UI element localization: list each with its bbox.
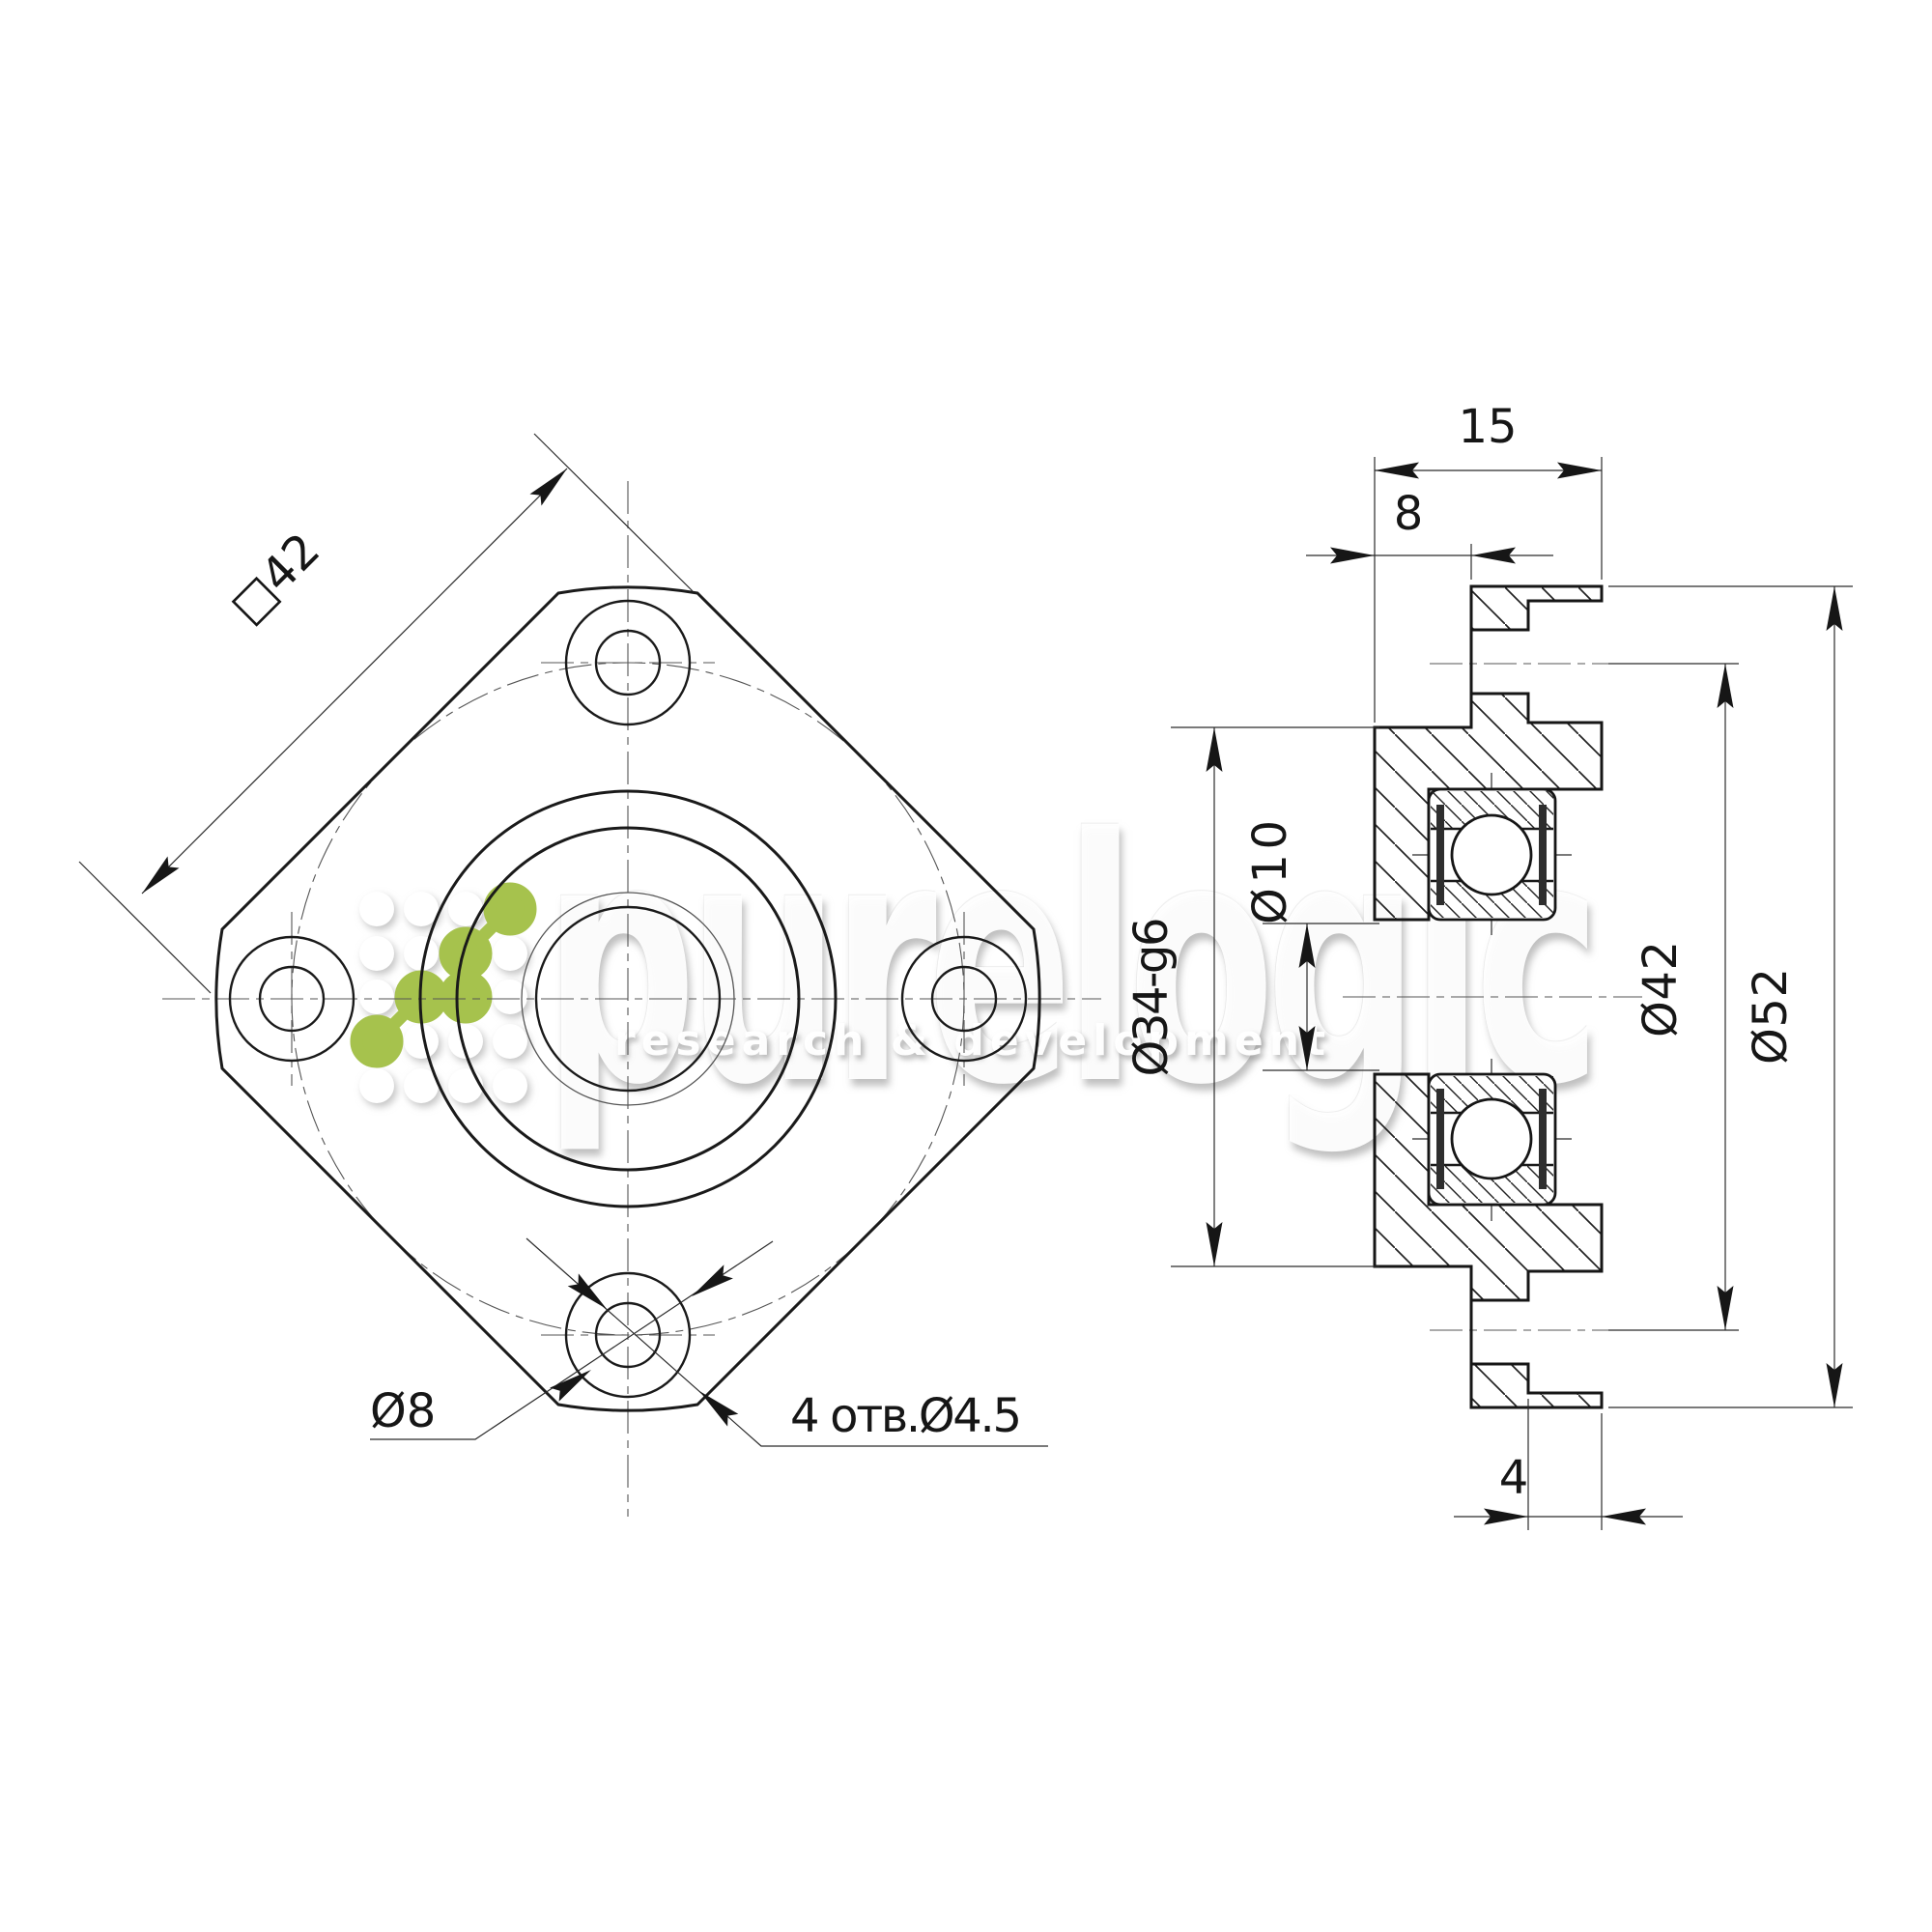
bearing-shield: [1539, 1089, 1547, 1189]
bearing-top: [1429, 789, 1555, 920]
bearing-shield: [1539, 805, 1547, 905]
dim-4: 4: [1454, 1399, 1683, 1530]
dim-4-holes: 4 отв.Ø4.5: [526, 1238, 1048, 1446]
bearing-shield: [1436, 1089, 1444, 1189]
front-centerlines: [162, 481, 1101, 1517]
bearing-ball: [1452, 815, 1531, 895]
dim-phi34-label: Ø34-g6: [1124, 918, 1179, 1077]
dim-4-label: 4: [1499, 1451, 1529, 1505]
dim-phi8: Ø8: [370, 1241, 773, 1439]
dim-8-label: 8: [1394, 487, 1424, 541]
dim-phi10-label: Ø10: [1243, 820, 1297, 924]
dim-phi42-label: Ø42: [1634, 941, 1688, 1037]
bearing-ball: [1452, 1099, 1531, 1179]
front-view: □42 Ø8 4 отв.Ø4.5: [79, 434, 1101, 1517]
bearing-shield: [1436, 805, 1444, 905]
drawing-canvas: purelogic research & development: [0, 0, 1932, 1932]
dim-square-42: □42: [79, 434, 693, 993]
side-view: 15 8 4: [1124, 400, 1853, 1530]
dim-4-holes-label: 4 отв.Ø4.5: [790, 1389, 1022, 1443]
dim-phi10: Ø10: [1243, 820, 1379, 1070]
technical-drawing: □42 Ø8 4 отв.Ø4.5: [0, 0, 1932, 1932]
dim-phi34: Ø34-g6: [1124, 727, 1379, 1266]
dim-square-42-label: □42: [219, 523, 330, 634]
dim-phi8-label: Ø8: [370, 1384, 436, 1438]
dim-phi52-label: Ø52: [1744, 968, 1798, 1065]
dim-15-label: 15: [1458, 400, 1517, 454]
dim-8: 8: [1306, 487, 1553, 580]
bearing-bottom: [1429, 1074, 1555, 1205]
dim-15: 15: [1375, 400, 1602, 723]
